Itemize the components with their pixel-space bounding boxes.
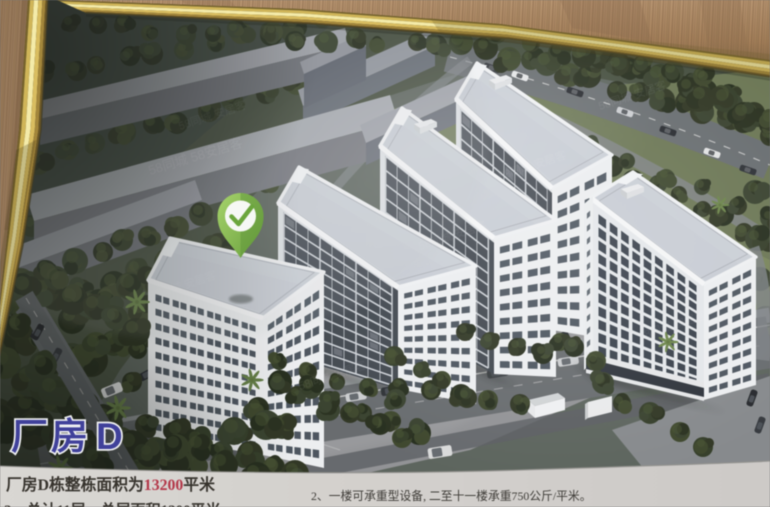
svg-text:2、一楼可承重型设备, 二至十一楼承重750公斤/平米。: 2、一楼可承重型设备, 二至十一楼承重750公斤/平米。 — [311, 489, 592, 503]
svg-text:厂房D: 厂房D — [11, 416, 126, 457]
svg-text:厂房D栋整栋面积为13200平米: 厂房D栋整栋面积为13200平米 — [6, 475, 215, 494]
